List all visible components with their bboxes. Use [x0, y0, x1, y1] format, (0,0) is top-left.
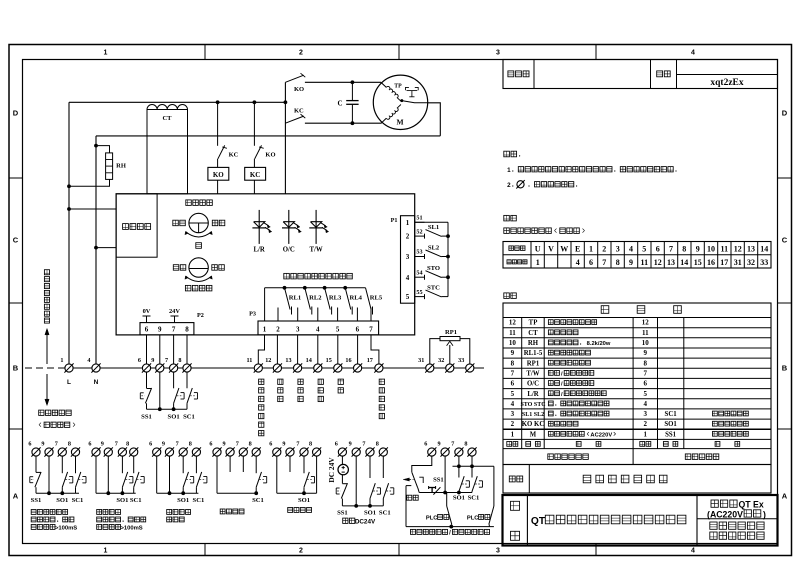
svg-text:16: 16 — [707, 258, 715, 267]
svg-text:9: 9 — [349, 441, 352, 448]
svg-text:STC: STC — [427, 285, 440, 292]
svg-text:L: L — [67, 379, 71, 386]
svg-text:12: 12 — [265, 357, 271, 364]
svg-text:SC1: SC1 — [72, 497, 84, 504]
svg-text:33: 33 — [760, 258, 768, 267]
svg-text:3: 3 — [511, 410, 515, 418]
svg-text:RH: RH — [116, 162, 126, 169]
svg-text:8: 8 — [464, 441, 467, 448]
svg-text:8: 8 — [682, 245, 686, 254]
svg-text:7: 7 — [165, 357, 168, 364]
svg-text:3: 3 — [406, 253, 410, 261]
svg-text:7: 7 — [172, 326, 176, 334]
svg-text:D: D — [13, 109, 19, 118]
svg-text:4: 4 — [576, 258, 580, 267]
svg-text:RL4: RL4 — [349, 295, 362, 302]
svg-text:PLC: PLC — [467, 516, 479, 522]
svg-text:7: 7 — [451, 441, 454, 448]
svg-text:10: 10 — [642, 339, 650, 347]
svg-text:SS1: SS1 — [665, 431, 677, 438]
svg-text:L/R: L/R — [527, 391, 538, 398]
svg-text:SL1: SL1 — [428, 224, 439, 231]
svg-text:3: 3 — [496, 50, 500, 57]
svg-text:RL2: RL2 — [309, 295, 322, 302]
svg-text:9: 9 — [158, 326, 162, 334]
svg-text:TP: TP — [394, 84, 402, 90]
svg-text:1: 1 — [263, 326, 267, 334]
svg-text:KC: KC — [294, 108, 304, 115]
svg-text:12: 12 — [509, 319, 517, 327]
svg-text:RP1: RP1 — [445, 329, 457, 336]
svg-text:24V: 24V — [169, 308, 180, 315]
svg-text:5: 5 — [511, 390, 515, 398]
svg-text:4: 4 — [629, 245, 633, 254]
svg-text:6: 6 — [28, 441, 31, 448]
svg-text:1: 1 — [644, 430, 648, 438]
svg-text:KO: KO — [294, 86, 304, 93]
svg-text:7: 7 — [176, 441, 179, 448]
svg-text:P3: P3 — [249, 311, 256, 318]
svg-text:15: 15 — [694, 258, 702, 267]
svg-text:C: C — [337, 99, 342, 107]
svg-text:9: 9 — [629, 258, 633, 267]
svg-text:C: C — [13, 236, 19, 245]
svg-text:10: 10 — [707, 245, 715, 254]
svg-text:DC 24V: DC 24V — [327, 457, 336, 483]
svg-text:6: 6 — [424, 441, 427, 448]
svg-text:32: 32 — [747, 258, 755, 267]
svg-text:8: 8 — [178, 357, 181, 364]
svg-text:4: 4 — [511, 400, 515, 408]
svg-text:11: 11 — [641, 258, 649, 267]
svg-text:T/W: T/W — [526, 370, 539, 377]
svg-text:33: 33 — [458, 357, 464, 364]
svg-text:2: 2 — [507, 182, 511, 189]
svg-text:A: A — [13, 492, 19, 501]
svg-text:6: 6 — [589, 258, 593, 267]
svg-text:U: U — [535, 245, 541, 254]
svg-text:SO1: SO1 — [168, 414, 180, 421]
svg-text:7: 7 — [511, 369, 515, 377]
svg-text:4: 4 — [644, 400, 648, 408]
svg-text:8: 8 — [309, 441, 312, 448]
svg-text:12: 12 — [642, 319, 650, 327]
svg-text:STO STC: STO STC — [520, 402, 545, 408]
svg-text:SC1: SC1 — [665, 411, 678, 418]
svg-text:13: 13 — [285, 357, 291, 364]
svg-text:1: 1 — [511, 430, 515, 438]
svg-text:KO: KO — [213, 171, 224, 179]
svg-text:SC1: SC1 — [193, 497, 205, 504]
svg-text:6: 6 — [209, 441, 212, 448]
svg-text:14: 14 — [760, 245, 768, 254]
svg-text:>100mS: >100mS — [55, 526, 77, 532]
svg-text:9: 9 — [511, 349, 515, 357]
svg-text:SC1: SC1 — [130, 497, 142, 504]
svg-text:3: 3 — [296, 326, 300, 334]
svg-text:SC1: SC1 — [468, 495, 480, 502]
svg-text:O/C: O/C — [283, 246, 295, 253]
svg-text:11: 11 — [246, 357, 252, 364]
svg-text:4: 4 — [691, 548, 695, 555]
svg-text:RL5: RL5 — [370, 295, 383, 302]
svg-text:6: 6 — [335, 441, 338, 448]
svg-text:W: W — [560, 245, 568, 254]
svg-text:8.2k/20w: 8.2k/20w — [587, 341, 611, 347]
svg-text:15: 15 — [326, 357, 332, 364]
svg-text:51: 51 — [416, 215, 422, 222]
svg-text:8: 8 — [185, 326, 189, 334]
svg-text:52: 52 — [416, 228, 422, 235]
svg-text:5: 5 — [644, 390, 648, 398]
svg-text:9: 9 — [644, 349, 648, 357]
svg-text:1: 1 — [406, 219, 410, 227]
svg-text:E: E — [575, 245, 580, 254]
svg-text:SL2: SL2 — [428, 245, 440, 252]
svg-text:AC220V: AC220V — [590, 432, 612, 438]
svg-text:9: 9 — [162, 441, 165, 448]
svg-text:7: 7 — [115, 441, 118, 448]
svg-text:KC: KC — [229, 152, 239, 159]
svg-text:2: 2 — [276, 326, 280, 334]
svg-text:V: V — [548, 245, 554, 254]
svg-text:6: 6 — [269, 441, 272, 448]
svg-text:7: 7 — [362, 441, 365, 448]
svg-text:5: 5 — [336, 326, 340, 334]
svg-text:xqt2zEx: xqt2zEx — [710, 78, 744, 88]
svg-text:7: 7 — [602, 258, 606, 267]
svg-text:N: N — [94, 379, 99, 386]
svg-text:RP1: RP1 — [527, 360, 540, 367]
svg-text:T/W: T/W — [309, 246, 322, 253]
svg-text:SO1: SO1 — [453, 495, 465, 502]
svg-text:SS1: SS1 — [141, 414, 152, 421]
svg-text:SC1: SC1 — [379, 510, 391, 517]
svg-text:9: 9 — [438, 441, 441, 448]
svg-text:QT: QT — [531, 516, 546, 527]
svg-text:7: 7 — [55, 441, 58, 448]
svg-text:3: 3 — [616, 245, 620, 254]
svg-text:2: 2 — [299, 548, 303, 555]
svg-text:KO: KO — [265, 152, 275, 159]
svg-text:(AC220V: (AC220V — [707, 509, 743, 519]
svg-text:7: 7 — [236, 441, 239, 448]
svg-text:RL3: RL3 — [329, 295, 342, 302]
svg-text:14: 14 — [306, 357, 312, 364]
svg-text:16: 16 — [345, 357, 351, 364]
svg-text:B: B — [782, 364, 788, 373]
svg-text:1: 1 — [104, 548, 108, 555]
svg-text:2: 2 — [299, 50, 303, 57]
svg-text:54: 54 — [416, 269, 422, 276]
svg-text:2: 2 — [406, 233, 410, 241]
svg-text:SO1: SO1 — [177, 497, 189, 504]
svg-text:>100mS: >100mS — [120, 526, 142, 532]
svg-text:17: 17 — [367, 357, 373, 364]
svg-text:12: 12 — [654, 258, 662, 267]
svg-text:KO KC: KO KC — [522, 421, 545, 428]
svg-text:9: 9 — [223, 441, 226, 448]
svg-text:8: 8 — [189, 441, 192, 448]
svg-text:9: 9 — [282, 441, 285, 448]
svg-text:SO1: SO1 — [116, 497, 128, 504]
svg-text:4: 4 — [691, 50, 695, 57]
svg-text:KC: KC — [250, 171, 261, 179]
svg-text:): ) — [763, 509, 766, 519]
svg-text:6: 6 — [149, 441, 152, 448]
svg-text:6: 6 — [138, 357, 141, 364]
svg-text:TP: TP — [529, 320, 538, 327]
svg-text:11: 11 — [509, 329, 516, 337]
svg-text:31: 31 — [734, 258, 742, 267]
svg-text:10: 10 — [509, 339, 517, 347]
svg-text:5: 5 — [642, 245, 646, 254]
svg-text:SS1: SS1 — [31, 497, 42, 504]
svg-text:53: 53 — [416, 249, 422, 256]
svg-text:11: 11 — [721, 245, 729, 254]
svg-text:SL1 SL2: SL1 SL2 — [522, 412, 544, 418]
svg-text:PLC: PLC — [426, 516, 438, 522]
svg-text:7: 7 — [296, 441, 299, 448]
svg-text:SO1: SO1 — [364, 510, 376, 517]
svg-text:M: M — [530, 431, 537, 438]
svg-text:13: 13 — [747, 245, 755, 254]
svg-text:17: 17 — [720, 258, 728, 267]
svg-text:CT: CT — [162, 115, 172, 122]
svg-text:1: 1 — [536, 258, 540, 267]
svg-text:8: 8 — [644, 359, 648, 367]
svg-text:0V: 0V — [143, 308, 151, 315]
svg-text:RH: RH — [528, 340, 539, 347]
svg-text:8: 8 — [376, 441, 379, 448]
svg-text:8: 8 — [68, 441, 71, 448]
svg-text:2: 2 — [644, 420, 648, 428]
svg-text:M: M — [396, 118, 403, 127]
svg-text:B: B — [13, 364, 19, 373]
svg-text:6: 6 — [511, 380, 515, 388]
svg-text:DC24V: DC24V — [355, 519, 376, 526]
svg-text:8: 8 — [249, 441, 252, 448]
svg-text:9: 9 — [151, 357, 154, 364]
svg-text:1: 1 — [507, 167, 511, 174]
svg-text:L/R: L/R — [254, 246, 265, 253]
svg-text:8: 8 — [511, 359, 515, 367]
svg-text:2: 2 — [511, 420, 515, 428]
svg-text:31: 31 — [418, 357, 424, 364]
svg-text:SS1: SS1 — [433, 477, 444, 484]
svg-text:4: 4 — [87, 357, 90, 364]
svg-text:SS1: SS1 — [337, 510, 348, 517]
svg-text:3: 3 — [644, 410, 648, 418]
svg-text:P1: P1 — [391, 217, 398, 224]
svg-text:D: D — [782, 109, 788, 118]
svg-text:P2: P2 — [197, 312, 204, 319]
svg-text:SC1: SC1 — [252, 497, 264, 504]
svg-text:SC1: SC1 — [183, 414, 195, 421]
svg-text:8: 8 — [126, 441, 129, 448]
svg-text:A: A — [782, 492, 788, 501]
svg-text:5: 5 — [406, 293, 410, 301]
svg-text:O/C: O/C — [527, 381, 539, 388]
svg-text:SO1: SO1 — [56, 497, 68, 504]
svg-text:7: 7 — [369, 326, 373, 334]
svg-text:RL1: RL1 — [289, 295, 301, 302]
svg-text:6: 6 — [656, 245, 660, 254]
svg-text:6: 6 — [145, 326, 149, 334]
svg-text:STO: STO — [427, 265, 440, 272]
svg-text:9: 9 — [696, 245, 700, 254]
svg-text:RL1-5: RL1-5 — [524, 350, 543, 357]
svg-text:6: 6 — [88, 441, 91, 448]
svg-text:2: 2 — [602, 245, 606, 254]
svg-text:32: 32 — [438, 357, 444, 364]
svg-text:3: 3 — [496, 548, 500, 555]
svg-text:4: 4 — [406, 274, 410, 282]
svg-text:6: 6 — [356, 326, 360, 334]
svg-text:9: 9 — [101, 441, 104, 448]
svg-text:1: 1 — [104, 50, 108, 57]
svg-text:SO1: SO1 — [298, 497, 310, 504]
svg-text:55: 55 — [416, 289, 422, 296]
svg-text:QT Ex: QT Ex — [738, 500, 763, 510]
svg-text:CT: CT — [528, 330, 538, 337]
svg-text:C: C — [782, 236, 788, 245]
svg-text:4: 4 — [316, 326, 320, 334]
svg-text:14: 14 — [680, 258, 688, 267]
svg-text:6: 6 — [644, 380, 648, 388]
svg-text:12: 12 — [734, 245, 742, 254]
svg-text:7: 7 — [669, 245, 673, 254]
svg-text:9: 9 — [41, 441, 44, 448]
svg-text:13: 13 — [667, 258, 675, 267]
svg-text:7: 7 — [644, 369, 648, 377]
svg-text:8: 8 — [616, 258, 620, 267]
svg-text:SO1: SO1 — [664, 421, 677, 428]
svg-text:11: 11 — [642, 329, 649, 337]
svg-text:1: 1 — [60, 357, 63, 364]
svg-text:1: 1 — [589, 245, 593, 254]
